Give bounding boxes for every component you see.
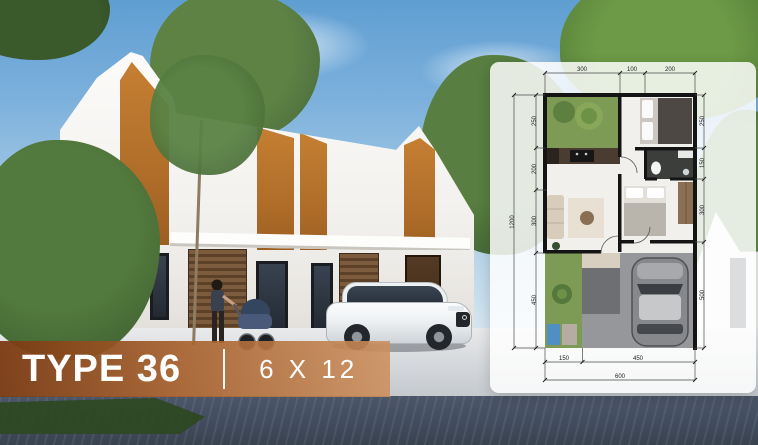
- dim-top-3: 200: [665, 67, 676, 73]
- dim-right-2: 150: [700, 157, 706, 168]
- dim-top-2: 100: [627, 67, 638, 73]
- floorplan-drawing: 300 100 200 250 200 300 450 1200 250 150…: [490, 62, 756, 393]
- dim-bottom-total: 600: [615, 374, 626, 380]
- car-headlight: [448, 306, 464, 311]
- person-leg: [212, 311, 217, 343]
- person-leg: [219, 311, 224, 343]
- dim-right-4: 500: [700, 289, 706, 300]
- dim-left-1: 250: [532, 115, 538, 126]
- dim-left-4: 450: [532, 294, 538, 305]
- dim-left-total: 1200: [510, 215, 516, 229]
- car-wheel-front: [426, 324, 452, 350]
- tree-foreground-canopy: [150, 55, 265, 175]
- bin-gray: [562, 324, 577, 345]
- dim-right-3: 300: [700, 204, 706, 215]
- dim-left-3: 300: [532, 215, 538, 226]
- dim-bottom-1: 150: [559, 356, 570, 362]
- floorplan-panel: 300 100 200 250 200 300 450 1200 250 150…: [490, 62, 756, 393]
- rear-garden: [545, 95, 620, 148]
- kitchen: [545, 148, 620, 164]
- mercedes-star-icon: [462, 315, 467, 320]
- banner-divider: [223, 349, 225, 389]
- roof-accent-stripe-2: [257, 127, 294, 251]
- bin-blue: [547, 324, 560, 345]
- type-label: TYPE 36: [22, 348, 181, 391]
- person-head: [212, 280, 223, 291]
- type-banner: TYPE 36 6 X 12: [0, 341, 390, 397]
- stroller-body: [238, 314, 272, 329]
- stroller-canopy: [241, 299, 270, 316]
- person-torso: [211, 290, 224, 312]
- front-garden: [545, 253, 582, 348]
- stroller-handle: [234, 304, 240, 316]
- bathroom: [645, 148, 695, 179]
- car-top-view: [632, 258, 688, 346]
- size-label: 6 X 12: [259, 354, 358, 385]
- dim-left-2: 200: [532, 163, 538, 174]
- dim-bottom-2: 450: [633, 356, 644, 362]
- marketing-image: TYPE 36 6 X 12: [0, 0, 758, 445]
- person: [211, 280, 236, 344]
- bedroom-1: [640, 98, 692, 144]
- dim-top-1: 300: [577, 67, 588, 73]
- dim-right-1: 250: [700, 115, 706, 126]
